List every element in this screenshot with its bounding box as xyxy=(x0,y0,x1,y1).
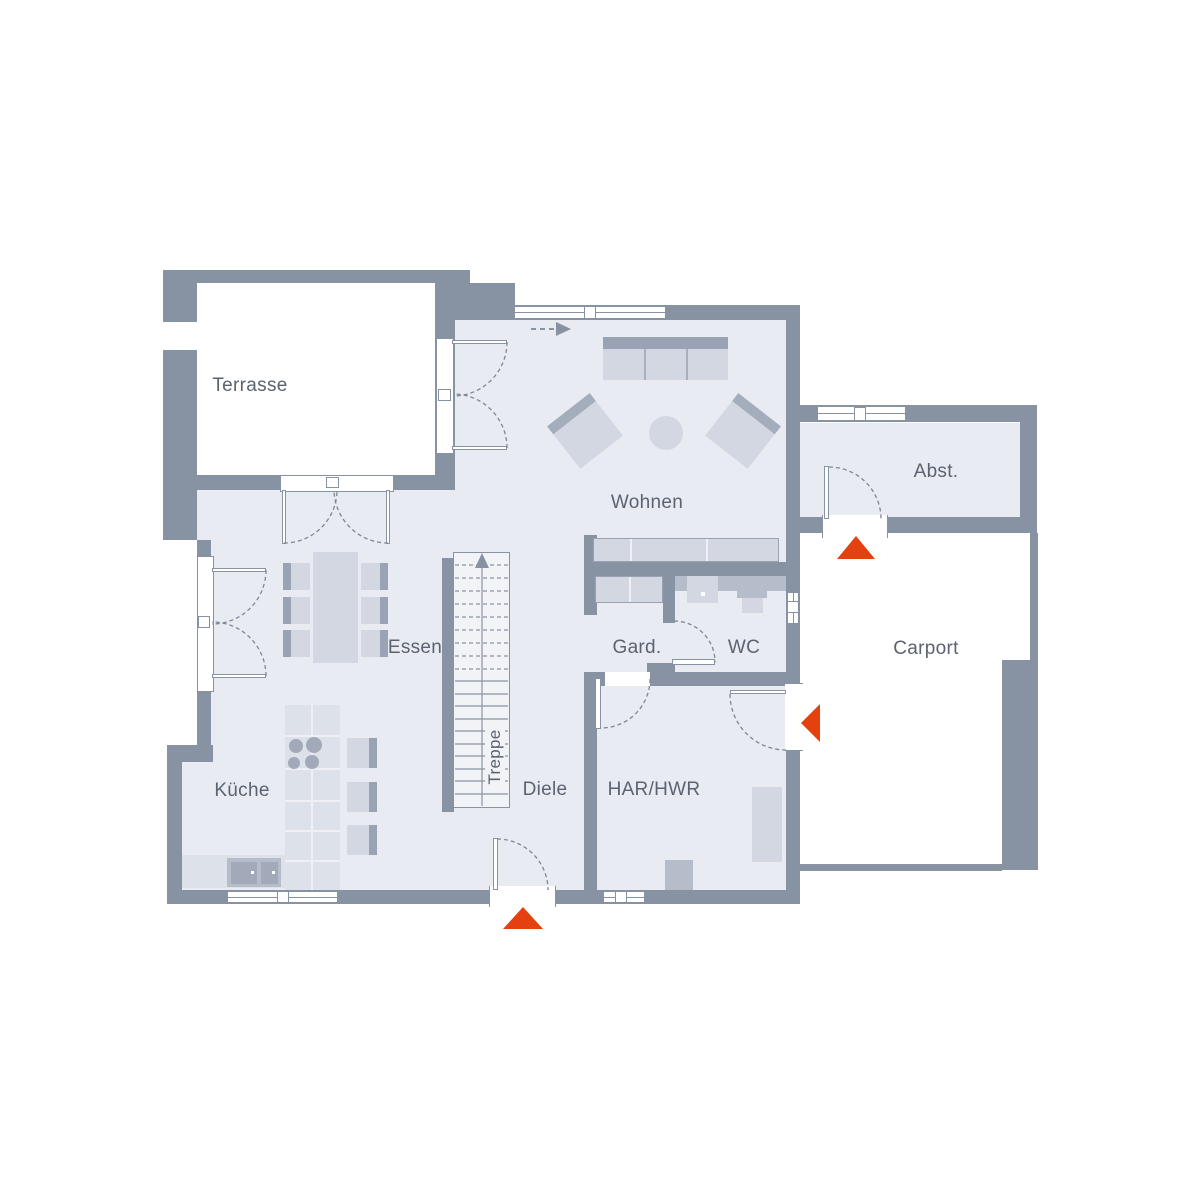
har-appliance-bottom xyxy=(665,860,693,890)
dining-chair xyxy=(361,563,388,590)
door-leaf xyxy=(824,466,829,519)
door-leaf xyxy=(212,674,266,678)
wall-under-sideboard xyxy=(584,562,800,576)
window-marker xyxy=(615,891,627,903)
room-label-diele: Diele xyxy=(523,779,568,801)
sofa-seat xyxy=(603,349,728,380)
coffee-table xyxy=(649,416,683,450)
wall-left-jog xyxy=(167,745,213,762)
entrance-arrow-left-icon xyxy=(801,704,820,742)
door-leaf xyxy=(730,690,786,694)
entrance-arrow-up-icon xyxy=(837,536,875,559)
sink-basin xyxy=(231,862,257,884)
toilet-tank xyxy=(737,580,767,598)
stove-burner xyxy=(306,737,322,753)
door-leaf xyxy=(386,490,390,544)
room-label-garderobe: Gard. xyxy=(612,637,661,659)
window-marker xyxy=(277,891,289,903)
wall-abst-right xyxy=(1020,405,1037,533)
door-leaf xyxy=(452,340,507,344)
door-leaf xyxy=(595,678,601,729)
wall-gard-wc-partition xyxy=(663,568,675,623)
room-label-carport: Carport xyxy=(893,638,958,660)
dining-chair xyxy=(361,597,388,624)
wall-corner-block xyxy=(435,283,515,320)
dining-chair xyxy=(283,597,310,624)
room-label-abstellraum: Abst. xyxy=(914,461,959,483)
room-label-treppe: Treppe xyxy=(485,727,505,786)
wall-terrasse-left xyxy=(163,270,197,540)
window-marker xyxy=(584,306,596,319)
dining-chair xyxy=(283,563,310,590)
wall-carport-right-thin xyxy=(1030,533,1038,660)
floor-abstellraum xyxy=(800,423,1020,517)
door-leaf xyxy=(212,568,266,572)
window-marker xyxy=(787,601,799,613)
entrance-arrow-up-icon xyxy=(503,907,543,929)
dining-table xyxy=(313,552,358,663)
sink-basin xyxy=(261,862,278,884)
kitchen-counter-island xyxy=(285,705,340,890)
door-knob xyxy=(326,477,339,488)
door-opening-diele-har xyxy=(605,672,650,686)
wall-carport-right-block xyxy=(1002,660,1038,870)
wall-left-kueche xyxy=(167,762,182,904)
stove-burner xyxy=(288,757,300,769)
dining-chair xyxy=(283,630,310,657)
door-leaf xyxy=(672,659,715,665)
room-label-terrasse: Terrasse xyxy=(212,375,287,397)
window-marker xyxy=(854,407,866,421)
door-threshold-abst xyxy=(822,515,888,538)
bar-stool xyxy=(347,782,377,812)
wall-terrasse-top xyxy=(163,270,470,283)
wall-zone-bottom-step xyxy=(647,663,675,672)
door-leaf xyxy=(282,490,286,544)
door-knob xyxy=(198,616,210,628)
wall-gap-terrasse-left xyxy=(163,322,197,350)
bar-stool xyxy=(347,738,377,768)
sideboard xyxy=(593,538,779,562)
room-label-har-hwr: HAR/HWR xyxy=(608,779,701,801)
bar-stool xyxy=(347,825,377,855)
toilet-bowl xyxy=(742,598,763,613)
door-knob xyxy=(438,389,451,401)
washbasin xyxy=(687,576,718,603)
stove-burner xyxy=(289,739,303,753)
door-leaf xyxy=(493,838,498,890)
floor-plan: Terrasse Wohnen Abst. Carport Essen Gard… xyxy=(0,0,1200,1200)
sofa-back xyxy=(603,337,728,349)
har-appliance-tall xyxy=(752,787,782,862)
room-label-wc: WC xyxy=(728,637,760,659)
door-threshold-entrance xyxy=(489,886,556,907)
door-leaf xyxy=(452,446,507,450)
dining-chair xyxy=(361,630,388,657)
stove-burner xyxy=(305,755,319,769)
room-label-wohnen: Wohnen xyxy=(611,492,683,514)
room-label-essen: Essen xyxy=(388,637,442,659)
wardrobe xyxy=(595,576,663,603)
door-threshold-har-outside xyxy=(785,683,803,751)
wall-carport-bottom xyxy=(800,864,1002,871)
room-label-kueche: Küche xyxy=(214,780,269,802)
